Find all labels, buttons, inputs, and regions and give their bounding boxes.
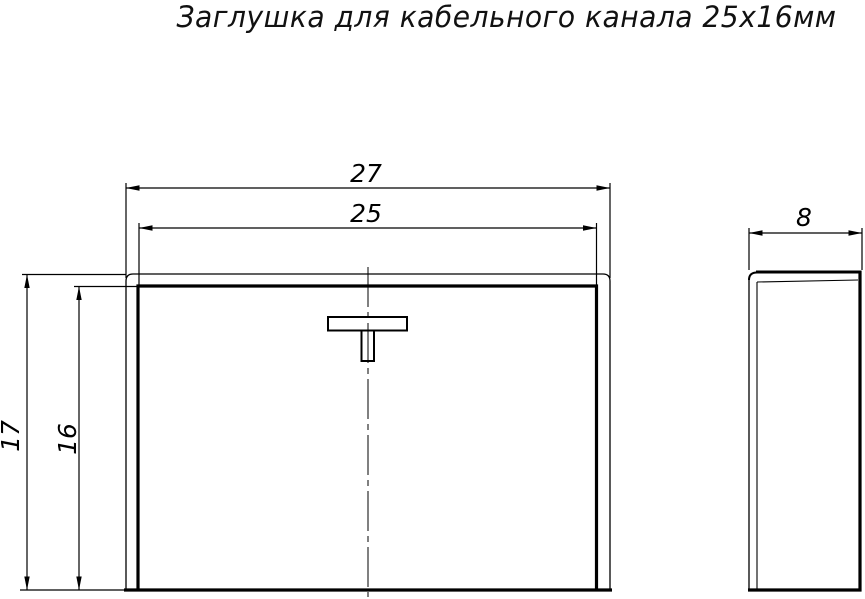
arrow-17-bottom [24, 577, 29, 591]
side-lip-line [757, 280, 858, 282]
dim-label-inner-width: 25 [350, 199, 382, 228]
arrow-8-right [849, 230, 863, 235]
dimension-labels: 27 25 17 16 8 [0, 159, 812, 455]
arrow-27-left [126, 185, 140, 190]
arrow-27-right [597, 185, 611, 190]
arrow-8-left [749, 230, 763, 235]
dimension-arrows [24, 185, 862, 590]
arrow-25-right [583, 225, 597, 230]
side-view [748, 271, 862, 592]
front-view [124, 267, 612, 597]
dimension-lines [20, 183, 862, 590]
dim-label-outer-height: 17 [0, 420, 25, 452]
arrow-16-bottom [76, 577, 81, 591]
dim-label-depth: 8 [796, 203, 812, 232]
dim-label-inner-height: 16 [53, 423, 82, 455]
arrow-17-top [24, 275, 29, 289]
drawing-canvas: 27 25 17 16 8 [0, 0, 865, 599]
dim-label-outer-width: 27 [350, 159, 382, 188]
arrow-25-left [139, 225, 153, 230]
side-top-left-corner [749, 273, 757, 281]
arrow-16-top [76, 287, 81, 301]
drawing-sheet: Заглушка для кабельного канала 25х16мм [0, 0, 865, 599]
